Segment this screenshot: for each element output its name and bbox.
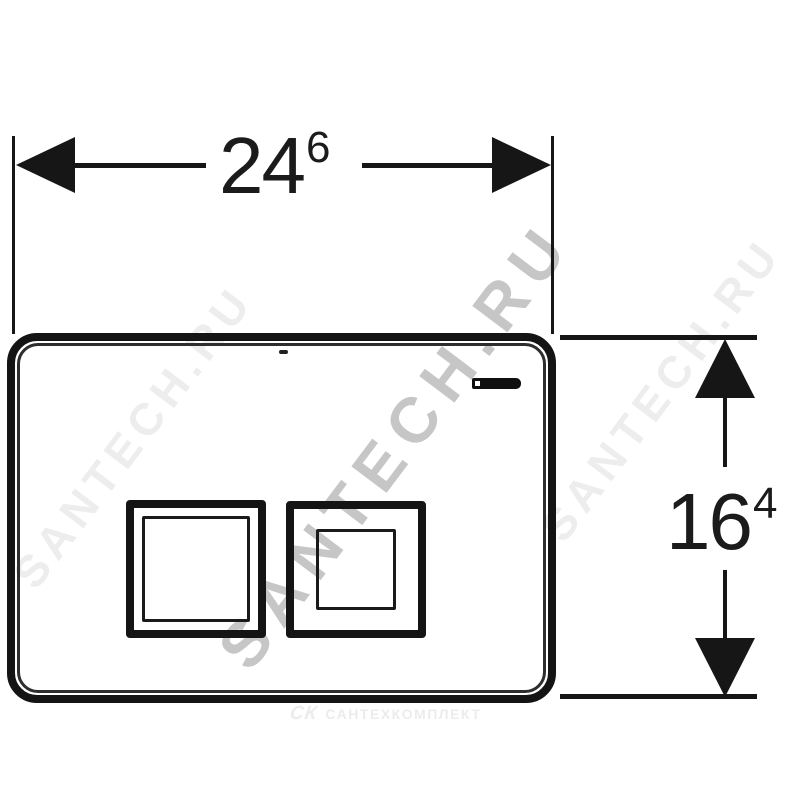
width-arrowhead-left-icon xyxy=(16,137,75,193)
width-extension-line-left xyxy=(12,136,15,334)
flush-button-large[interactable] xyxy=(126,500,266,638)
width-extension-line-right xyxy=(551,136,554,334)
geberit-logo-notch xyxy=(475,381,480,386)
width-dimension-line-left-segment xyxy=(74,163,206,168)
flush-plate xyxy=(7,333,556,703)
height-value-superscript: 4 xyxy=(753,482,777,526)
height-value: 16 xyxy=(666,482,751,562)
height-dimension-label: 16 4 xyxy=(666,482,777,562)
height-dimension-line-top-segment xyxy=(723,398,727,467)
width-dimension-line-right-segment xyxy=(362,163,494,168)
height-arrowhead-up-icon xyxy=(695,339,755,398)
flush-plate-inner-outline xyxy=(17,343,546,693)
width-value: 24 xyxy=(219,126,304,206)
technical-drawing-canvas: SANTECH.RU SANTECH.RU SANTECH.RU СК САНТ… xyxy=(0,0,800,800)
height-arrowhead-down-icon xyxy=(695,638,755,697)
flush-button-large-inner-outline xyxy=(142,516,250,622)
flush-button-small[interactable] xyxy=(286,501,426,638)
width-value-superscript: 6 xyxy=(306,126,330,170)
geberit-logo-icon xyxy=(472,378,521,389)
watermark-bottom-logo: СК xyxy=(288,703,318,725)
width-dimension-label: 24 6 xyxy=(219,126,330,206)
flush-button-small-inner-outline xyxy=(316,529,396,610)
width-arrowhead-right-icon xyxy=(492,137,551,193)
watermark-bottom-label: САНТЕХКОМПЛЕКТ xyxy=(325,706,481,722)
watermark-bottom: СК САНТЕХКОМПЛЕКТ xyxy=(290,703,481,725)
flush-plate-center-notch xyxy=(279,350,288,354)
height-dimension-line-bottom-segment xyxy=(723,570,727,639)
